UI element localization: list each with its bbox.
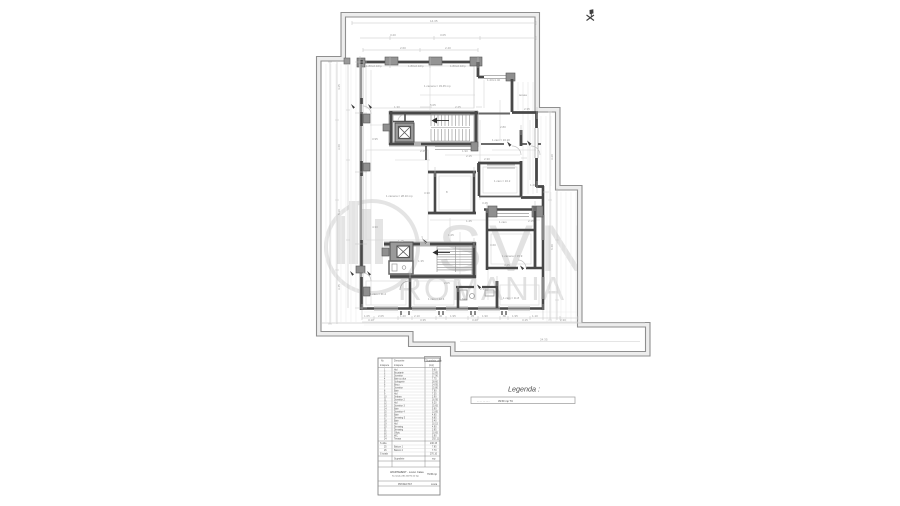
svg-text:15.65: 15.65: [432, 405, 438, 407]
svg-text:terasa: terasa: [519, 93, 527, 97]
svg-text:mp: mp: [432, 458, 436, 461]
svg-text:10.65: 10.65: [432, 432, 438, 434]
svg-text:2.30: 2.30: [484, 157, 490, 161]
svg-text:5.10: 5.10: [337, 209, 341, 215]
svg-text:15.80: 15.80: [432, 387, 438, 389]
svg-text:2.25: 2.25: [455, 105, 461, 109]
svg-text:Hol: Hol: [394, 393, 398, 395]
svg-text:- - - - - - - - -: - - - - - - - - -: [477, 400, 490, 403]
svg-text:Dressing: Dressing: [394, 425, 404, 428]
svg-text:2.15: 2.15: [528, 219, 534, 223]
svg-text:Baie: Baie: [394, 390, 399, 392]
svg-text:1.20x1.40: 1.20x1.40: [487, 78, 501, 82]
svg-text:3.45: 3.45: [337, 284, 341, 290]
svg-text:5.05: 5.05: [430, 103, 436, 107]
svg-text:Sufragerie: Sufragerie: [394, 380, 405, 383]
svg-text:1.95: 1.95: [512, 314, 518, 318]
svg-text:2.80: 2.80: [500, 125, 506, 129]
svg-text:2.05: 2.05: [378, 314, 384, 318]
svg-text:2.60: 2.60: [400, 46, 406, 50]
svg-text:4.30: 4.30: [372, 225, 378, 229]
svg-text:7.75: 7.75: [432, 378, 437, 380]
svg-text:16.95: 16.95: [432, 399, 438, 401]
svg-text:8: 8: [446, 190, 448, 194]
svg-text:5.40: 5.40: [432, 420, 437, 422]
svg-text:6.20: 6.20: [432, 402, 437, 404]
svg-text:3.20: 3.20: [550, 154, 554, 160]
svg-text:3.20: 3.20: [472, 318, 478, 322]
svg-text:Balcon 1: Balcon 1: [394, 447, 404, 449]
svg-text:Balcon 2: Balcon 2: [394, 450, 404, 452]
svg-text:Dormitor: Dormitor: [394, 374, 403, 377]
svg-text:Denumire: Denumire: [394, 360, 405, 363]
svg-text:39.50 mp TU: 39.50 mp TU: [498, 399, 513, 403]
svg-text:3.05: 3.05: [440, 33, 446, 37]
svg-text:4.90: 4.90: [432, 426, 437, 428]
svg-text:Oficiu: Oficiu: [394, 432, 401, 434]
svg-text:1.80x2.10/p: 1.80x2.10/p: [408, 64, 424, 68]
svg-text:Dormitor 4: Dormitor 4: [394, 410, 405, 413]
svg-text:APARTAMENT - Lux/et. Calea: APARTAMENT - Lux/et. Calea: [390, 471, 424, 474]
svg-text:Suprafete: Suprafete: [394, 458, 405, 461]
svg-text:3.25: 3.25: [504, 263, 510, 267]
svg-text:3.60: 3.60: [337, 144, 341, 150]
svg-text:Legenda :: Legenda :: [508, 385, 540, 394]
svg-text:5.90: 5.90: [432, 408, 437, 410]
svg-text:scara: scara: [431, 483, 438, 486]
svg-text:10.15: 10.15: [432, 423, 438, 425]
svg-text:1.15: 1.15: [398, 239, 404, 243]
svg-text:Hol: Hol: [394, 402, 398, 404]
svg-text:12.85: 12.85: [432, 372, 438, 374]
svg-text:Hol: Hol: [394, 369, 398, 371]
svg-text:incapere: incapere: [380, 364, 390, 367]
svg-text:1.90: 1.90: [462, 149, 468, 153]
svg-text:3.60: 3.60: [490, 243, 496, 247]
svg-text:1.45: 1.45: [466, 219, 472, 223]
svg-text:8.85: 8.85: [432, 417, 437, 419]
svg-text:Dormitor 2: Dormitor 2: [394, 398, 405, 401]
svg-text:2.40: 2.40: [445, 46, 451, 50]
svg-text:1 cam = 16.2: 1 cam = 16.2: [494, 179, 511, 183]
svg-text:3.95: 3.95: [372, 137, 378, 141]
svg-text:3.10: 3.10: [368, 318, 374, 322]
svg-text:1 cam: 1 cam: [499, 220, 507, 224]
svg-text:4.65: 4.65: [432, 414, 437, 416]
svg-text:24: 24: [384, 438, 387, 440]
svg-text:Dressing: Dressing: [394, 428, 404, 431]
svg-text:2.45: 2.45: [420, 149, 426, 153]
svg-text:3.35: 3.35: [420, 318, 426, 322]
svg-text:7.35: 7.35: [432, 393, 437, 395]
svg-text:25: 25: [384, 447, 387, 449]
svg-text:270.10: 270.10: [430, 453, 438, 455]
svg-text:Bucatarie: Bucatarie: [394, 371, 404, 374]
svg-text:Dormitor 3: Dormitor 3: [394, 404, 405, 407]
svg-text:14.95: 14.95: [432, 384, 438, 386]
svg-text:Baie cu dus: Baie cu dus: [394, 378, 407, 380]
svg-text:Debara: Debara: [394, 395, 402, 398]
svg-text:4.25: 4.25: [337, 84, 341, 90]
svg-text:246.15: 246.15: [430, 443, 438, 445]
svg-text:Dormitor: Dormitor: [394, 386, 403, 389]
svg-text:1.10: 1.10: [532, 314, 538, 318]
svg-text:1.80x2.10/p: 1.80x2.10/p: [366, 64, 382, 68]
svg-text:79.95 mp: 79.95 mp: [427, 473, 438, 476]
svg-text:Dressing 5: Dressing 5: [394, 416, 406, 419]
svg-text:2.15: 2.15: [466, 154, 472, 158]
svg-text:baie: baie: [462, 297, 468, 301]
svg-text:3.15: 3.15: [522, 318, 528, 322]
svg-text:1 cam = 11.2: 1 cam = 11.2: [370, 292, 386, 296]
svg-text:S totala: S totala: [380, 452, 389, 455]
svg-text:28.60: 28.60: [432, 381, 438, 383]
svg-text:6.40: 6.40: [550, 244, 554, 250]
svg-text:9.60: 9.60: [432, 369, 437, 371]
svg-text:1 cam = 11.8: 1 cam = 11.8: [503, 296, 519, 300]
svg-text:7.85: 7.85: [432, 447, 437, 449]
svg-text:3.20: 3.20: [390, 33, 396, 37]
svg-text:1.35: 1.35: [418, 259, 424, 263]
svg-text:1.95: 1.95: [450, 314, 456, 318]
svg-text:1.25: 1.25: [448, 233, 454, 237]
svg-text:1 camera = 33.45 mp: 1 camera = 33.45 mp: [424, 84, 451, 88]
svg-text:2.35: 2.35: [524, 107, 530, 111]
svg-text:(mp): (mp): [429, 364, 434, 367]
svg-text:3.90: 3.90: [432, 435, 437, 437]
svg-text:1 cam = 16.20: 1 cam = 16.20: [492, 138, 510, 142]
svg-text:PROIECTAT: PROIECTAT: [398, 483, 412, 486]
svg-text:1 camera = 15.9: 1 camera = 15.9: [502, 254, 523, 258]
svg-text:1.30: 1.30: [394, 105, 400, 109]
svg-text:Birou: Birou: [394, 383, 400, 386]
svg-text:17.90: 17.90: [432, 375, 438, 377]
svg-text:Terasa: Terasa: [394, 437, 402, 440]
svg-text:S utila: S utila: [380, 442, 387, 445]
svg-text:incapere: incapere: [394, 364, 404, 367]
svg-text:WC: WC: [394, 435, 398, 437]
svg-text:Su totala 246.15/270.10 mp: Su totala 246.15/270.10 mp: [392, 475, 420, 478]
svg-text:1.90: 1.90: [482, 314, 488, 318]
svg-text:24.35: 24.35: [540, 338, 548, 342]
svg-text:2.90: 2.90: [432, 396, 437, 398]
svg-text:Hol: Hol: [394, 423, 398, 425]
svg-text:292.11: 292.11: [432, 438, 440, 440]
svg-text:Baie: Baie: [394, 420, 399, 422]
svg-text:Baie: Baie: [394, 414, 399, 416]
svg-text:13.85: 13.85: [432, 411, 438, 413]
svg-text:Suprafata utila: Suprafata utila: [426, 360, 442, 363]
svg-text:26: 26: [384, 450, 387, 452]
svg-text:2.30: 2.30: [560, 318, 566, 322]
svg-text:1 camera = 28.10 mp: 1 camera = 28.10 mp: [386, 194, 413, 198]
svg-text:Nr.: Nr.: [381, 360, 384, 363]
svg-text:14.35: 14.35: [430, 19, 438, 23]
svg-text:1.80x2.10/p: 1.80x2.10/p: [450, 64, 466, 68]
svg-text:Baie: Baie: [394, 408, 399, 410]
svg-text:7.90: 7.90: [432, 390, 437, 392]
svg-text:3.30: 3.30: [424, 191, 430, 195]
svg-text:3.95: 3.95: [432, 429, 437, 431]
svg-text:7.70: 7.70: [432, 450, 437, 452]
svg-text:2.05: 2.05: [444, 281, 450, 285]
svg-text:1 cam = 12.4: 1 cam = 12.4: [428, 297, 445, 301]
